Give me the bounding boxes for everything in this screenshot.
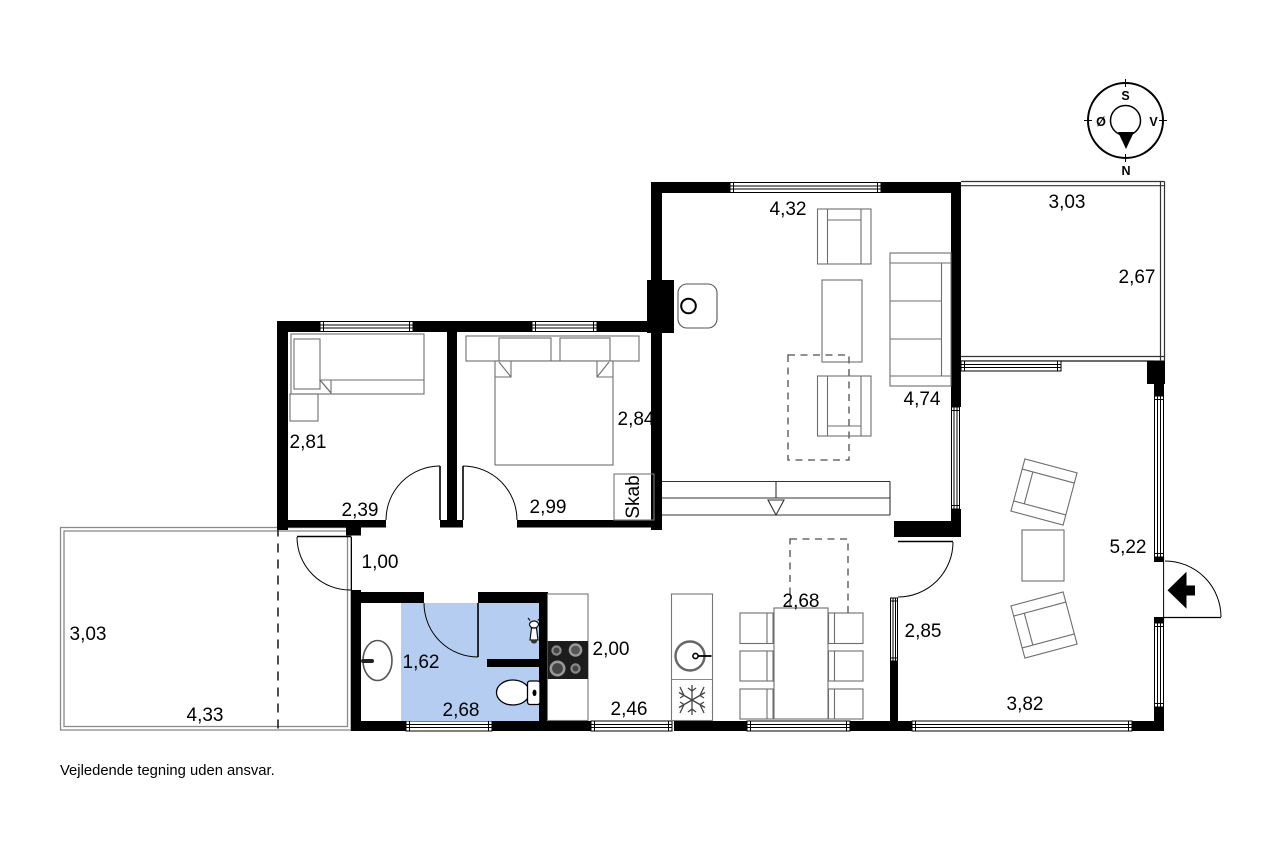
svg-text:Ø: Ø — [1096, 115, 1106, 129]
svg-text:4,32: 4,32 — [770, 199, 807, 220]
svg-text:3,03: 3,03 — [70, 624, 107, 645]
svg-text:2,00: 2,00 — [593, 639, 630, 660]
svg-text:V: V — [1149, 115, 1158, 129]
svg-text:2,46: 2,46 — [611, 699, 648, 720]
svg-text:3,82: 3,82 — [1007, 694, 1044, 715]
svg-text:N: N — [1121, 164, 1130, 178]
svg-text:4,33: 4,33 — [187, 705, 224, 726]
svg-text:Skab: Skab — [623, 475, 644, 518]
svg-text:1,62: 1,62 — [403, 652, 440, 673]
svg-text:2,99: 2,99 — [530, 497, 567, 518]
svg-text:4,74: 4,74 — [904, 389, 941, 410]
svg-text:3,03: 3,03 — [1049, 192, 1086, 213]
svg-text:2,84: 2,84 — [618, 409, 655, 430]
svg-text:2,67: 2,67 — [1119, 267, 1156, 288]
svg-text:2,68: 2,68 — [783, 591, 820, 612]
svg-text:2,81: 2,81 — [290, 432, 327, 453]
svg-text:5,22: 5,22 — [1110, 537, 1147, 558]
svg-text:2,85: 2,85 — [905, 621, 942, 642]
svg-text:2,39: 2,39 — [342, 500, 379, 521]
svg-text:2,68: 2,68 — [443, 700, 480, 721]
svg-text:Vejledende tegning uden ansvar: Vejledende tegning uden ansvar. — [60, 763, 275, 779]
svg-text:S: S — [1121, 89, 1129, 103]
svg-text:1,00: 1,00 — [362, 552, 399, 573]
